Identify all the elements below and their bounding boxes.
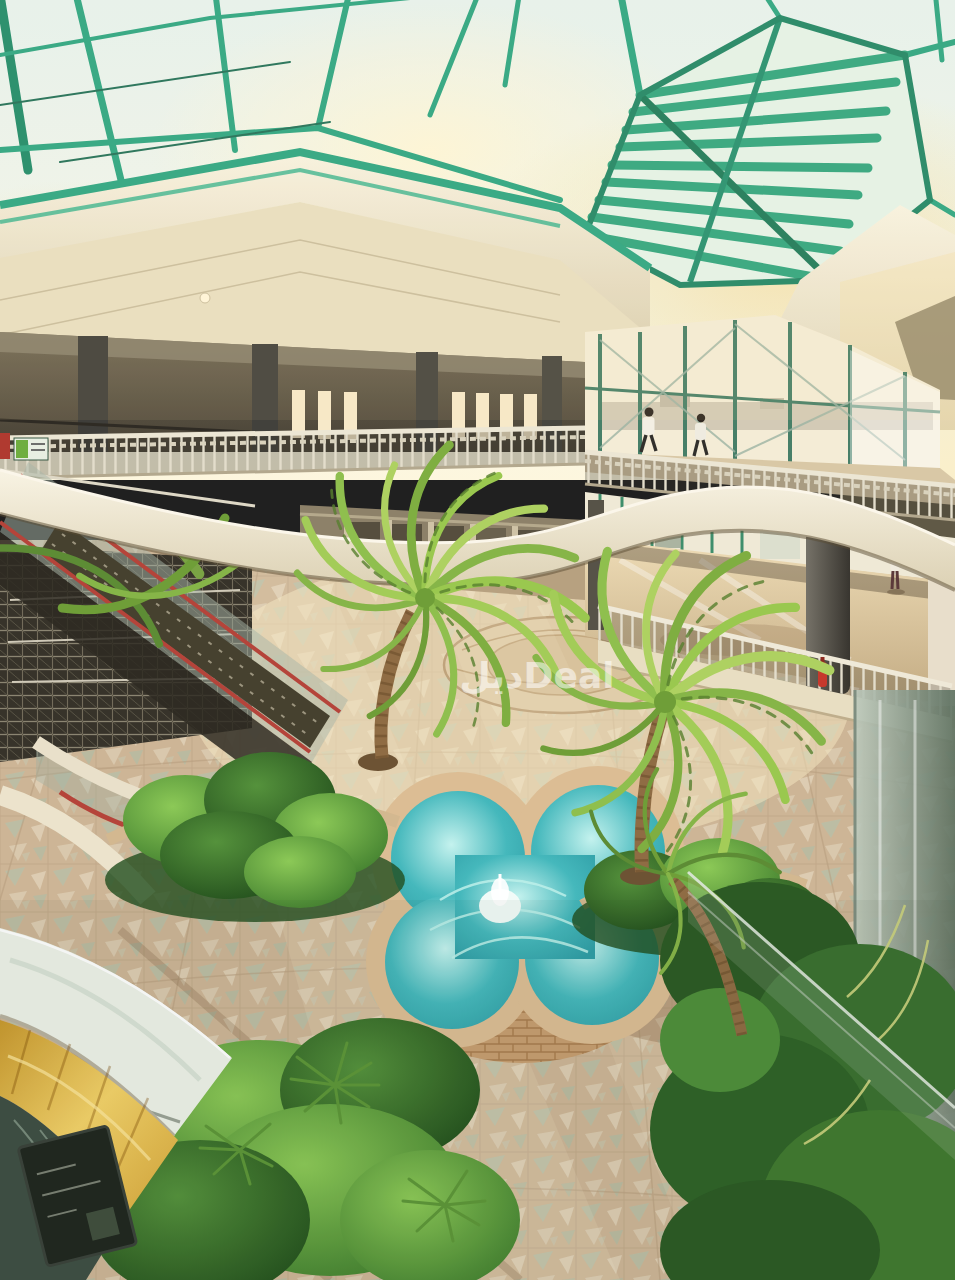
mall-atrium-photo: ديلDeal [0,0,955,1280]
watermark-text: ديلDeal [459,655,614,696]
